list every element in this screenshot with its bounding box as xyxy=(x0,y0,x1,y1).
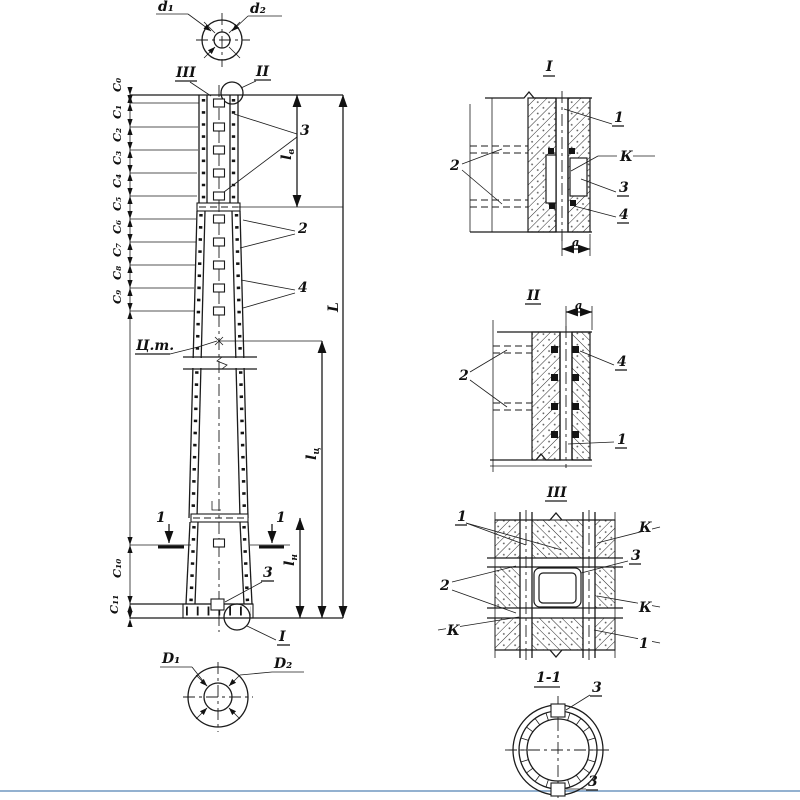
section-I-title: I xyxy=(545,59,553,75)
svg-text:C₅: C₅ xyxy=(110,197,124,211)
section-I-dim-a: a xyxy=(572,235,579,249)
section-III-part-2-label: 2 xyxy=(439,578,450,594)
section-I-part-4-label: 4 xyxy=(619,207,629,223)
dim-l-bottom: lн xyxy=(282,554,300,566)
section-I-part-2-label: 2 xyxy=(449,158,460,174)
section-II-part-4-label: 4 xyxy=(617,354,627,370)
section-III-keyway-label-1: К xyxy=(638,520,652,536)
part-4-label: 4 xyxy=(298,280,308,296)
section-II-detail: II a 2 4 1 xyxy=(458,288,627,472)
center-of-gravity-label: Ц.т. xyxy=(135,338,174,354)
bottom-plan-view: D₁ D₂ xyxy=(160,651,304,732)
section-III-keyway-label-3: 1 xyxy=(639,636,649,652)
part-2-label: 2 xyxy=(297,221,308,237)
svg-text:C₆: C₆ xyxy=(110,220,124,234)
section-1-1-view: 1-1 3 3 xyxy=(505,670,612,798)
section-III-detail: III К К 1 xyxy=(438,485,660,660)
bottom-plan-D2-label: D₂ xyxy=(273,656,292,672)
top-plan-d2-label: d₂ xyxy=(250,1,266,17)
section-mark-II: II xyxy=(255,64,270,80)
section-III-part-3-label: 3 xyxy=(631,548,641,564)
column-elevation: III II Ц.т. xyxy=(107,64,343,645)
cut-line-1-left-label: 1 xyxy=(156,510,166,526)
part-3-bottom-label: 3 xyxy=(263,565,273,581)
svg-text:C₂: C₂ xyxy=(110,128,124,142)
svg-text:C₁₁: C₁₁ xyxy=(107,595,121,614)
top-plan-d1-label: d₁ xyxy=(158,0,174,15)
section-I-detail: I 2 1 К 3 4 xyxy=(449,59,655,256)
svg-text:C₇: C₇ xyxy=(110,243,124,257)
section-III-part-1-label: 1 xyxy=(457,509,467,525)
section-II-title: II xyxy=(526,288,541,304)
bottom-plan-D1-label: D₁ xyxy=(161,651,180,667)
section-I-keyway-label: К xyxy=(619,149,633,165)
svg-text:C₃: C₃ xyxy=(110,151,124,165)
dim-l-top: lв xyxy=(279,149,297,160)
dim-l-cg: lц xyxy=(304,447,322,460)
section-III-keyway-label-4: К xyxy=(446,623,460,639)
section-II-part-2-label: 2 xyxy=(458,368,469,384)
top-plan-view: d₁ d₂ xyxy=(156,0,282,67)
cut-line-1-right-label: 1 xyxy=(276,510,286,526)
section-I-part-1-label: 1 xyxy=(614,110,624,126)
section-II-part-1-label: 1 xyxy=(617,432,627,448)
section-mark-III: III xyxy=(175,65,196,81)
technical-drawing-canvas: d₁ d₂ III II xyxy=(0,0,800,800)
svg-text:C₄: C₄ xyxy=(110,174,124,188)
svg-text:C₀: C₀ xyxy=(110,78,124,92)
drawing-sheet: d₁ d₂ III II xyxy=(0,0,800,800)
svg-text:C₉: C₉ xyxy=(110,290,124,304)
section-1-1-part-3-bottom-label: 3 xyxy=(588,774,598,790)
section-I-part-3-label: 3 xyxy=(619,180,629,196)
dim-L-total: L xyxy=(326,302,342,313)
section-III-title: III xyxy=(546,485,567,501)
section-1-1-part-3-top-label: 3 xyxy=(592,680,602,696)
svg-text:C₁: C₁ xyxy=(110,105,124,119)
chain-dimension-labels: C₀ C₁ C₂ C₃ C₄ C₅ C₆ C₇ C₈ C₉ C₁₀ C₁₁ xyxy=(107,78,124,614)
section-III-keyway-label-2: К xyxy=(638,600,652,616)
part-3-label: 3 xyxy=(300,123,310,139)
detail-balloon-bottom-label: I xyxy=(278,629,286,645)
svg-text:C₈: C₈ xyxy=(110,266,124,280)
svg-text:C₁₀: C₁₀ xyxy=(110,559,124,578)
section-II-dim-a: a xyxy=(575,298,582,312)
section-1-1-title: 1-1 xyxy=(536,670,561,686)
